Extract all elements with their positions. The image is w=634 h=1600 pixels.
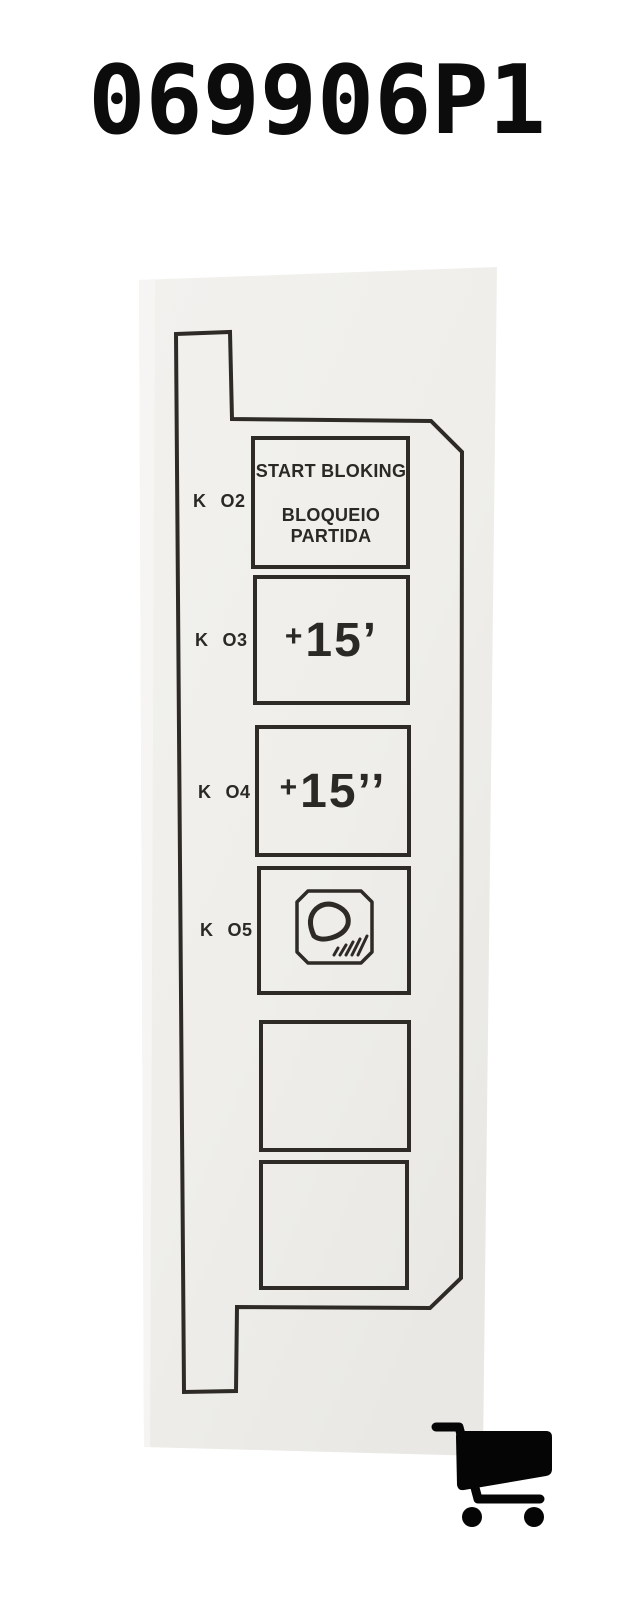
caption-partida: PARTIDA <box>253 526 409 546</box>
terminal-code: O4 <box>226 781 251 803</box>
plus-sign: + <box>280 771 298 805</box>
add-to-cart-button[interactable] <box>425 1413 560 1538</box>
terminal-code: O2 <box>221 490 246 512</box>
connector-letter: K <box>193 490 207 512</box>
row-label-k-o5: K O5 <box>200 919 253 941</box>
connector-letter: K <box>198 781 212 803</box>
caption-plus-15min: + 15’ <box>255 577 408 703</box>
terminal-code: O5 <box>228 919 253 941</box>
sticker-paper <box>139 267 497 1456</box>
shopping-cart-icon[interactable] <box>436 1427 552 1527</box>
caption-value: 15’ <box>305 613 378 668</box>
connector-letter: K <box>195 629 209 651</box>
row-label-k-o2: K O2 <box>193 490 246 512</box>
connector-letter: K <box>200 919 214 941</box>
caption-plus-15sec: + 15’’ <box>257 727 409 855</box>
row-label-k-o4: K O4 <box>198 781 251 803</box>
product-card: 069906P1 <box>0 0 634 1600</box>
caption-start-blocking: START BLOKING <box>253 461 409 481</box>
caption-value: 15’’ <box>300 764 386 819</box>
row-label-k-o3: K O3 <box>195 629 248 651</box>
caption-bloqueio: BLOQUEIO <box>253 505 409 525</box>
plus-sign: + <box>285 620 303 654</box>
terminal-code: O3 <box>223 629 248 651</box>
